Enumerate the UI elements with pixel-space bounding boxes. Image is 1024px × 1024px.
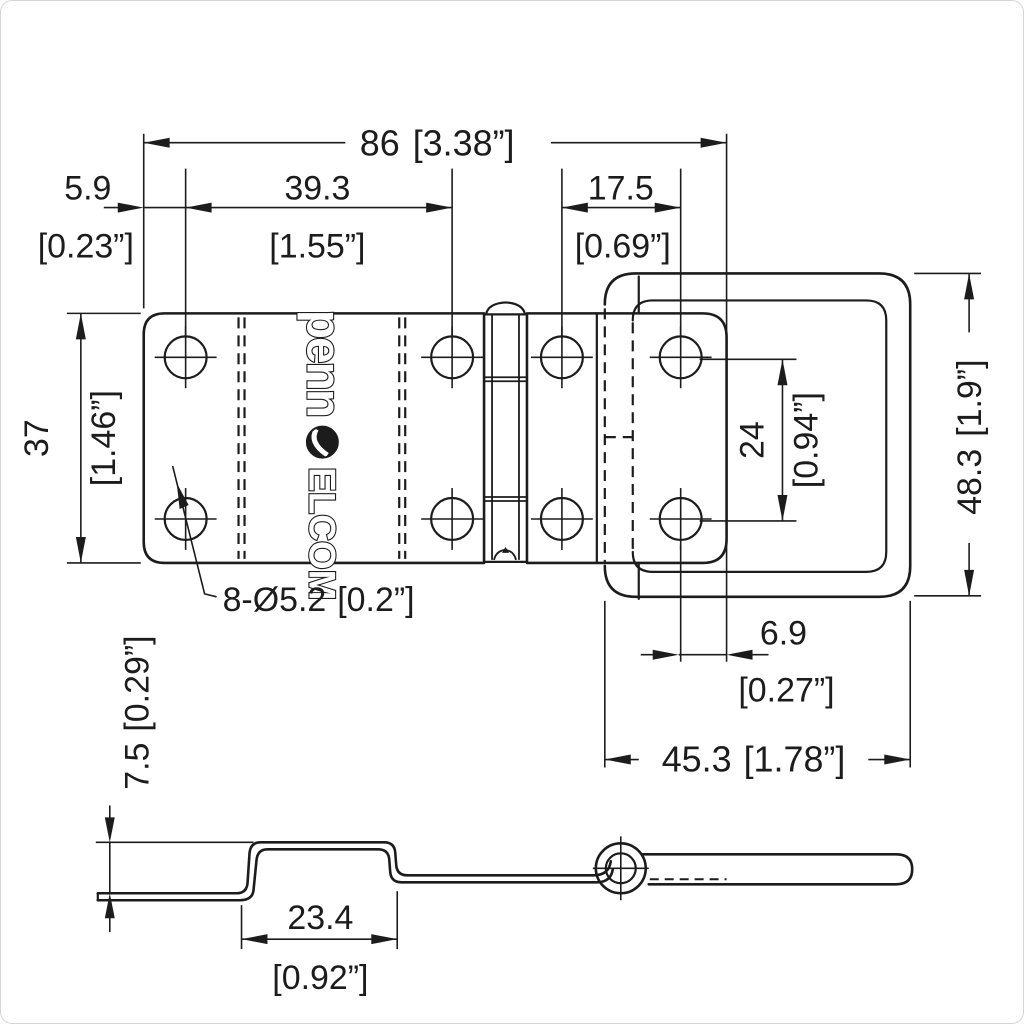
dim-hole-edge-offset-inch: [0.23”]	[38, 227, 134, 265]
dim-left-hole-spacing-mm: 39.3	[284, 170, 350, 208]
dim-hole-flap-edge-offset-mm: 6.9	[760, 615, 807, 653]
dim-right-hole-spacing: 17.5 [0.69”]	[562, 170, 681, 266]
profile-barrel	[593, 836, 649, 900]
dim-right-hole-spacing-mm: 17.5	[588, 170, 654, 208]
dim-channel-width-mm: 23.4	[287, 899, 353, 937]
dim-left-hole-spacing-inch: [1.55”]	[269, 227, 365, 265]
dim-hole-flap-edge-offset: 6.9 [0.27”]	[641, 615, 835, 710]
screw-hole	[531, 488, 593, 550]
dim-channel-width-inch: [0.92”]	[272, 959, 368, 997]
screw-hole	[650, 488, 712, 550]
dim-offset-depth: 7.5[0.29”]	[96, 635, 254, 932]
dim-hole-edge-offset: 5.9 [0.23”]	[38, 170, 186, 266]
extension-lines	[67, 134, 981, 768]
dim-hole-callout-text: 8-Ø5.2[0.2”]	[223, 581, 415, 619]
dim-flap-length-text: 45.3[1.78”]	[662, 738, 846, 779]
barrel-top-cap	[486, 302, 525, 314]
dim-overall-length: 86[3.38”]	[144, 123, 727, 164]
dim-hole-row-spacing-mm: 24	[734, 421, 772, 459]
dim-leaf-width: 37 [1.46”]	[18, 313, 123, 563]
drawing-canvas: penn ELCOM	[0, 0, 1024, 1024]
dim-flap-length: 45.3[1.78”]	[605, 738, 910, 779]
dim-flap-width-text: 48.3[1.9”]	[951, 359, 989, 514]
dim-offset-depth-text: 7.5[0.29”]	[119, 635, 157, 789]
brand-logo: penn ELCOM	[296, 310, 349, 601]
hinge-barrel	[484, 302, 527, 561]
dim-hole-edge-offset-mm: 5.9	[64, 170, 111, 208]
dim-hole-row-spacing-inch: [0.94”]	[787, 392, 825, 488]
dim-flap-width: 48.3[1.9”]	[951, 273, 989, 595]
technical-drawing-svg: penn ELCOM	[1, 1, 1023, 1023]
dim-left-hole-spacing: 39.3 [1.55”]	[186, 170, 452, 266]
dim-leaf-width-mm: 37	[18, 419, 56, 457]
penn-elcom-globe-icon	[307, 427, 338, 458]
brand-word-lower: penn	[296, 310, 349, 416]
dim-right-hole-spacing-inch: [0.69”]	[575, 227, 671, 265]
plan-dimensions: 86[3.38”] 5.9 [0.23”] 39.3 [1.55”] 17.5 …	[18, 123, 989, 780]
dim-hole-callout: 8-Ø5.2[0.2”]	[173, 466, 415, 619]
dim-channel-width: 23.4 [0.92”]	[242, 891, 398, 997]
dim-overall-text: 86[3.38”]	[360, 123, 515, 164]
screw-hole	[421, 488, 483, 550]
dim-leaf-width-inch: [1.46”]	[85, 390, 123, 486]
dim-hole-row-spacing: 24 [0.94”]	[734, 359, 826, 521]
dim-hole-flap-edge-offset-inch: [0.27”]	[738, 672, 834, 710]
